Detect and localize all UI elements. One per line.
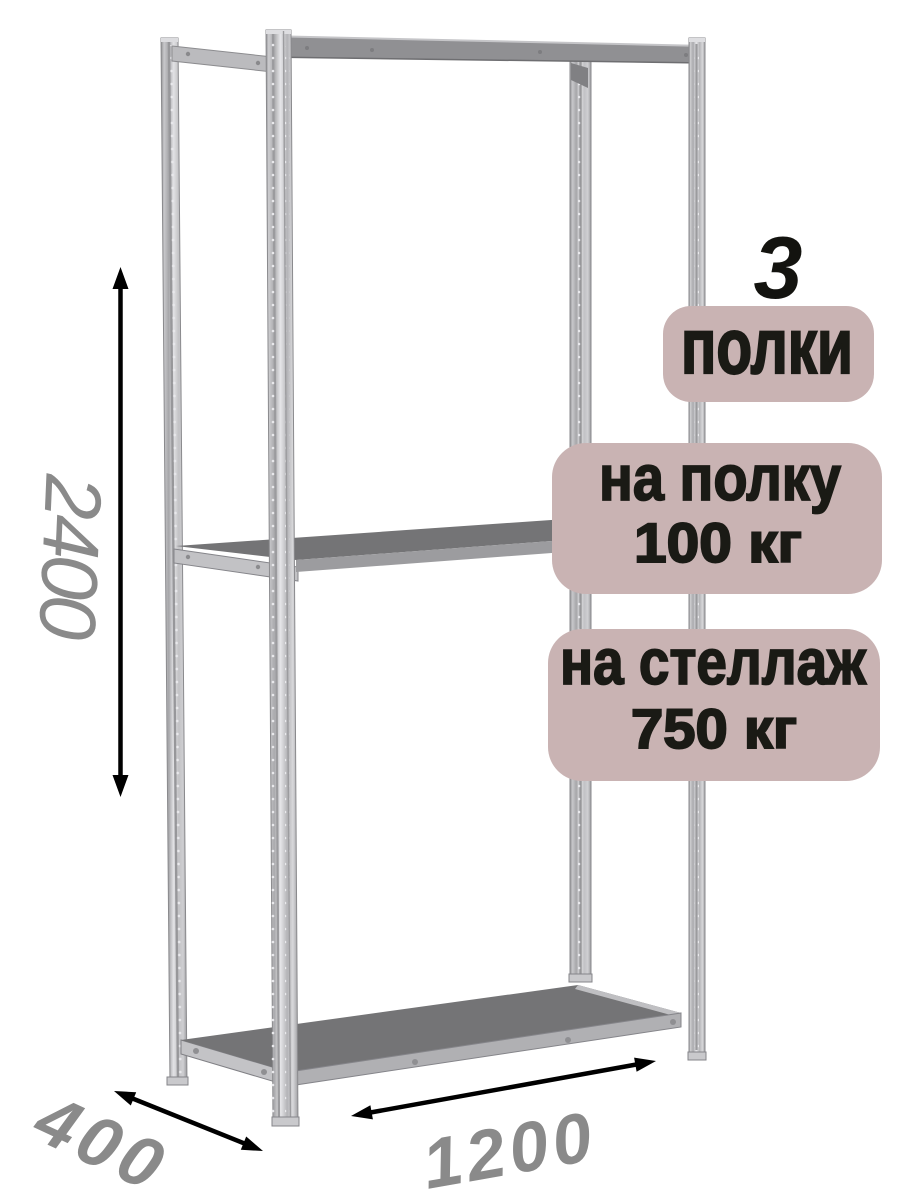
svg-text:на стеллаж: на стеллаж	[560, 626, 867, 698]
svg-text:на полку: на полку	[599, 442, 841, 514]
svg-text:750 кг: 750 кг	[631, 697, 797, 760]
svg-text:полки: полки	[681, 302, 853, 390]
svg-text:100 кг: 100 кг	[634, 511, 802, 574]
svg-text:2400: 2400	[22, 472, 118, 642]
